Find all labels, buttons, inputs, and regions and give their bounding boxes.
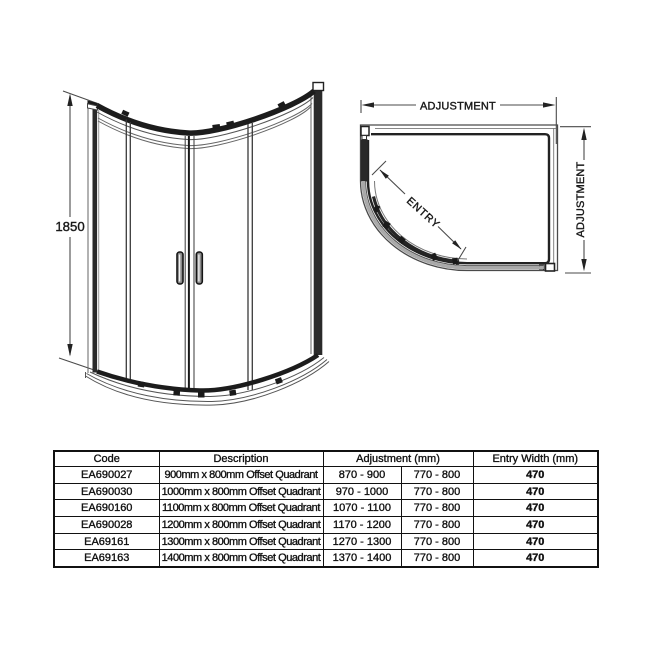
svg-text:1850: 1850 bbox=[55, 219, 84, 234]
svg-text:ADJUSTMENT: ADJUSTMENT bbox=[575, 161, 587, 237]
svg-text:ADJUSTMENT: ADJUSTMENT bbox=[420, 101, 496, 113]
svg-text:ENTRY: ENTRY bbox=[404, 195, 442, 231]
